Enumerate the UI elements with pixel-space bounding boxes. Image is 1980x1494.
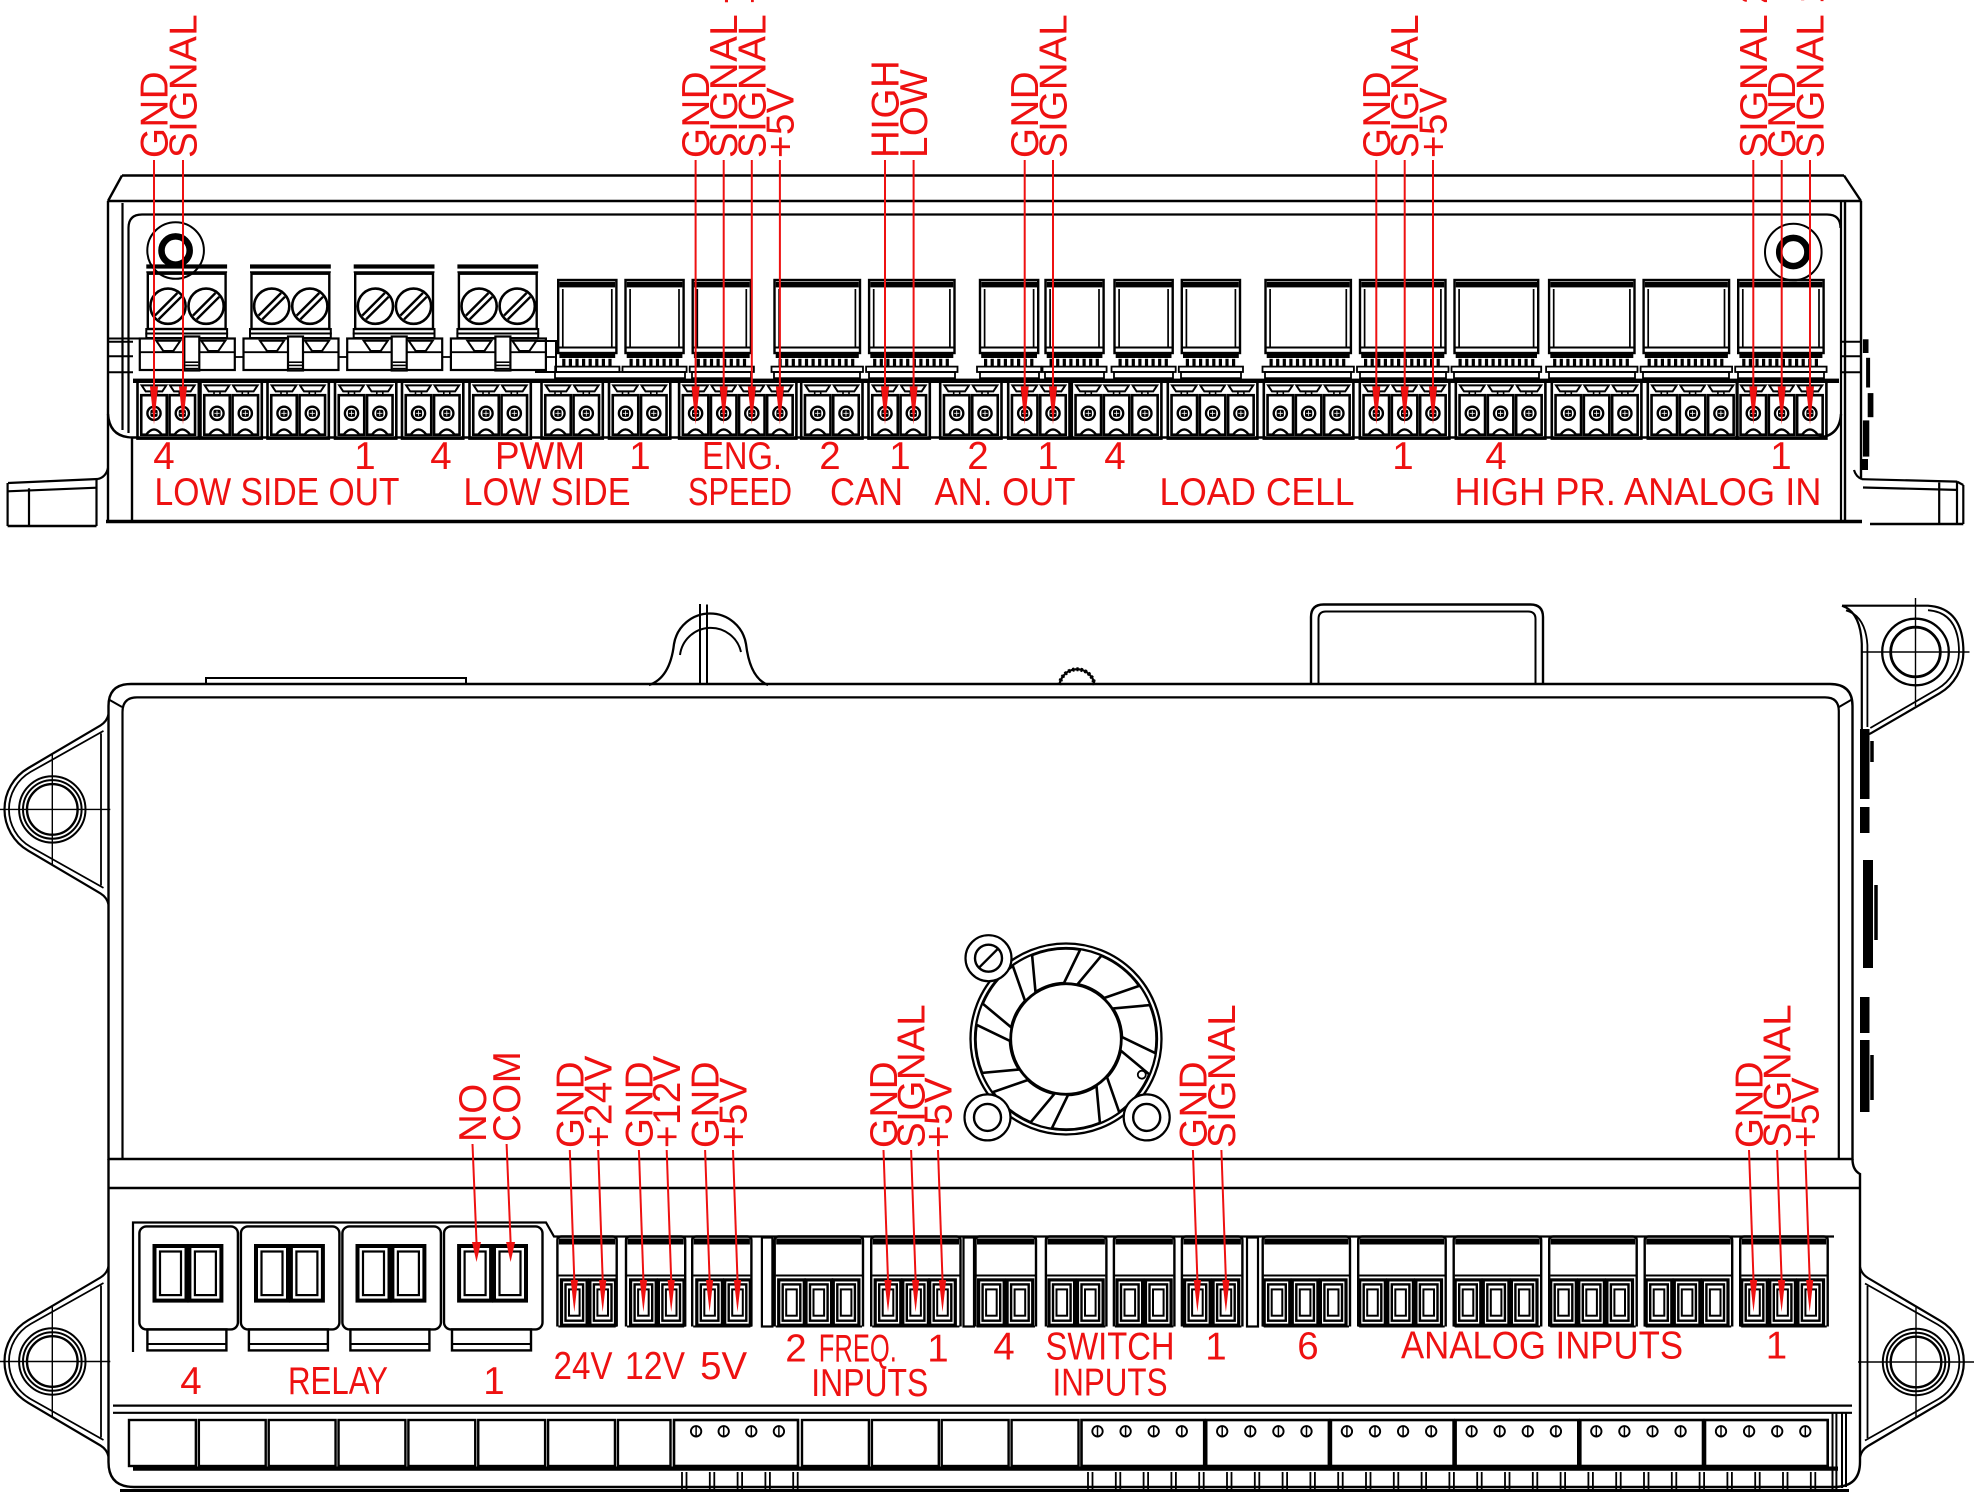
svg-text:1: 1 bbox=[629, 435, 650, 478]
svg-text:1: 1 bbox=[1766, 1325, 1787, 1368]
svg-text:+5V: +5V bbox=[1413, 87, 1456, 158]
svg-text:+12V: +12V bbox=[646, 1055, 689, 1148]
svg-text:LOW SIDE OUT: LOW SIDE OUT bbox=[155, 471, 400, 514]
svg-text:INPUTS: INPUTS bbox=[811, 1362, 928, 1405]
svg-text:RELAY: RELAY bbox=[288, 1360, 388, 1403]
svg-text:CAN: CAN bbox=[830, 471, 903, 514]
svg-text:ANALOG INPUTS: ANALOG INPUTS bbox=[1401, 1325, 1683, 1368]
svg-text:SIGNAL: SIGNAL bbox=[1201, 1004, 1244, 1148]
svg-text:12V: 12V bbox=[625, 1345, 685, 1388]
svg-text:4: 4 bbox=[1104, 435, 1125, 478]
svg-text:LOW: LOW bbox=[893, 69, 936, 158]
svg-text:4: 4 bbox=[430, 435, 451, 478]
svg-text:SPEED: SPEED bbox=[688, 471, 792, 514]
svg-text:SIGNAL: SIGNAL bbox=[163, 14, 206, 158]
svg-text:4: 4 bbox=[180, 1360, 201, 1403]
svg-text:+5V: +5V bbox=[759, 87, 802, 158]
svg-text:SIGNAL: SIGNAL bbox=[1033, 14, 1076, 158]
svg-text:+24V: +24V bbox=[578, 1055, 621, 1148]
svg-text:5V: 5V bbox=[700, 1345, 747, 1388]
svg-text:AN. OUT: AN. OUT bbox=[935, 471, 1076, 514]
svg-text:24V: 24V bbox=[554, 1345, 613, 1388]
svg-text:+5V: +5V bbox=[713, 1077, 756, 1148]
svg-text:LOAD CELL: LOAD CELL bbox=[1160, 471, 1355, 514]
svg-text:4: 4 bbox=[993, 1326, 1014, 1369]
svg-text:6: 6 bbox=[1297, 1325, 1318, 1368]
svg-text:2: 2 bbox=[785, 1328, 806, 1371]
svg-text:+5V: +5V bbox=[1785, 1077, 1828, 1148]
svg-text:1: 1 bbox=[483, 1360, 504, 1403]
svg-text:INPUTS: INPUTS bbox=[1053, 1362, 1168, 1405]
svg-text:1: 1 bbox=[1205, 1326, 1226, 1369]
svg-text:1: 1 bbox=[927, 1328, 948, 1371]
svg-text:LOW SIDE: LOW SIDE bbox=[464, 471, 631, 514]
svg-text:COM: COM bbox=[486, 1051, 529, 1142]
svg-text:+5V: +5V bbox=[918, 1077, 961, 1148]
svg-text:1: 1 bbox=[1392, 435, 1413, 478]
svg-text:SIGNAL 1: SIGNAL 1 bbox=[1790, 0, 1833, 158]
svg-text:HIGH PR. ANALOG IN: HIGH PR. ANALOG IN bbox=[1455, 471, 1822, 514]
